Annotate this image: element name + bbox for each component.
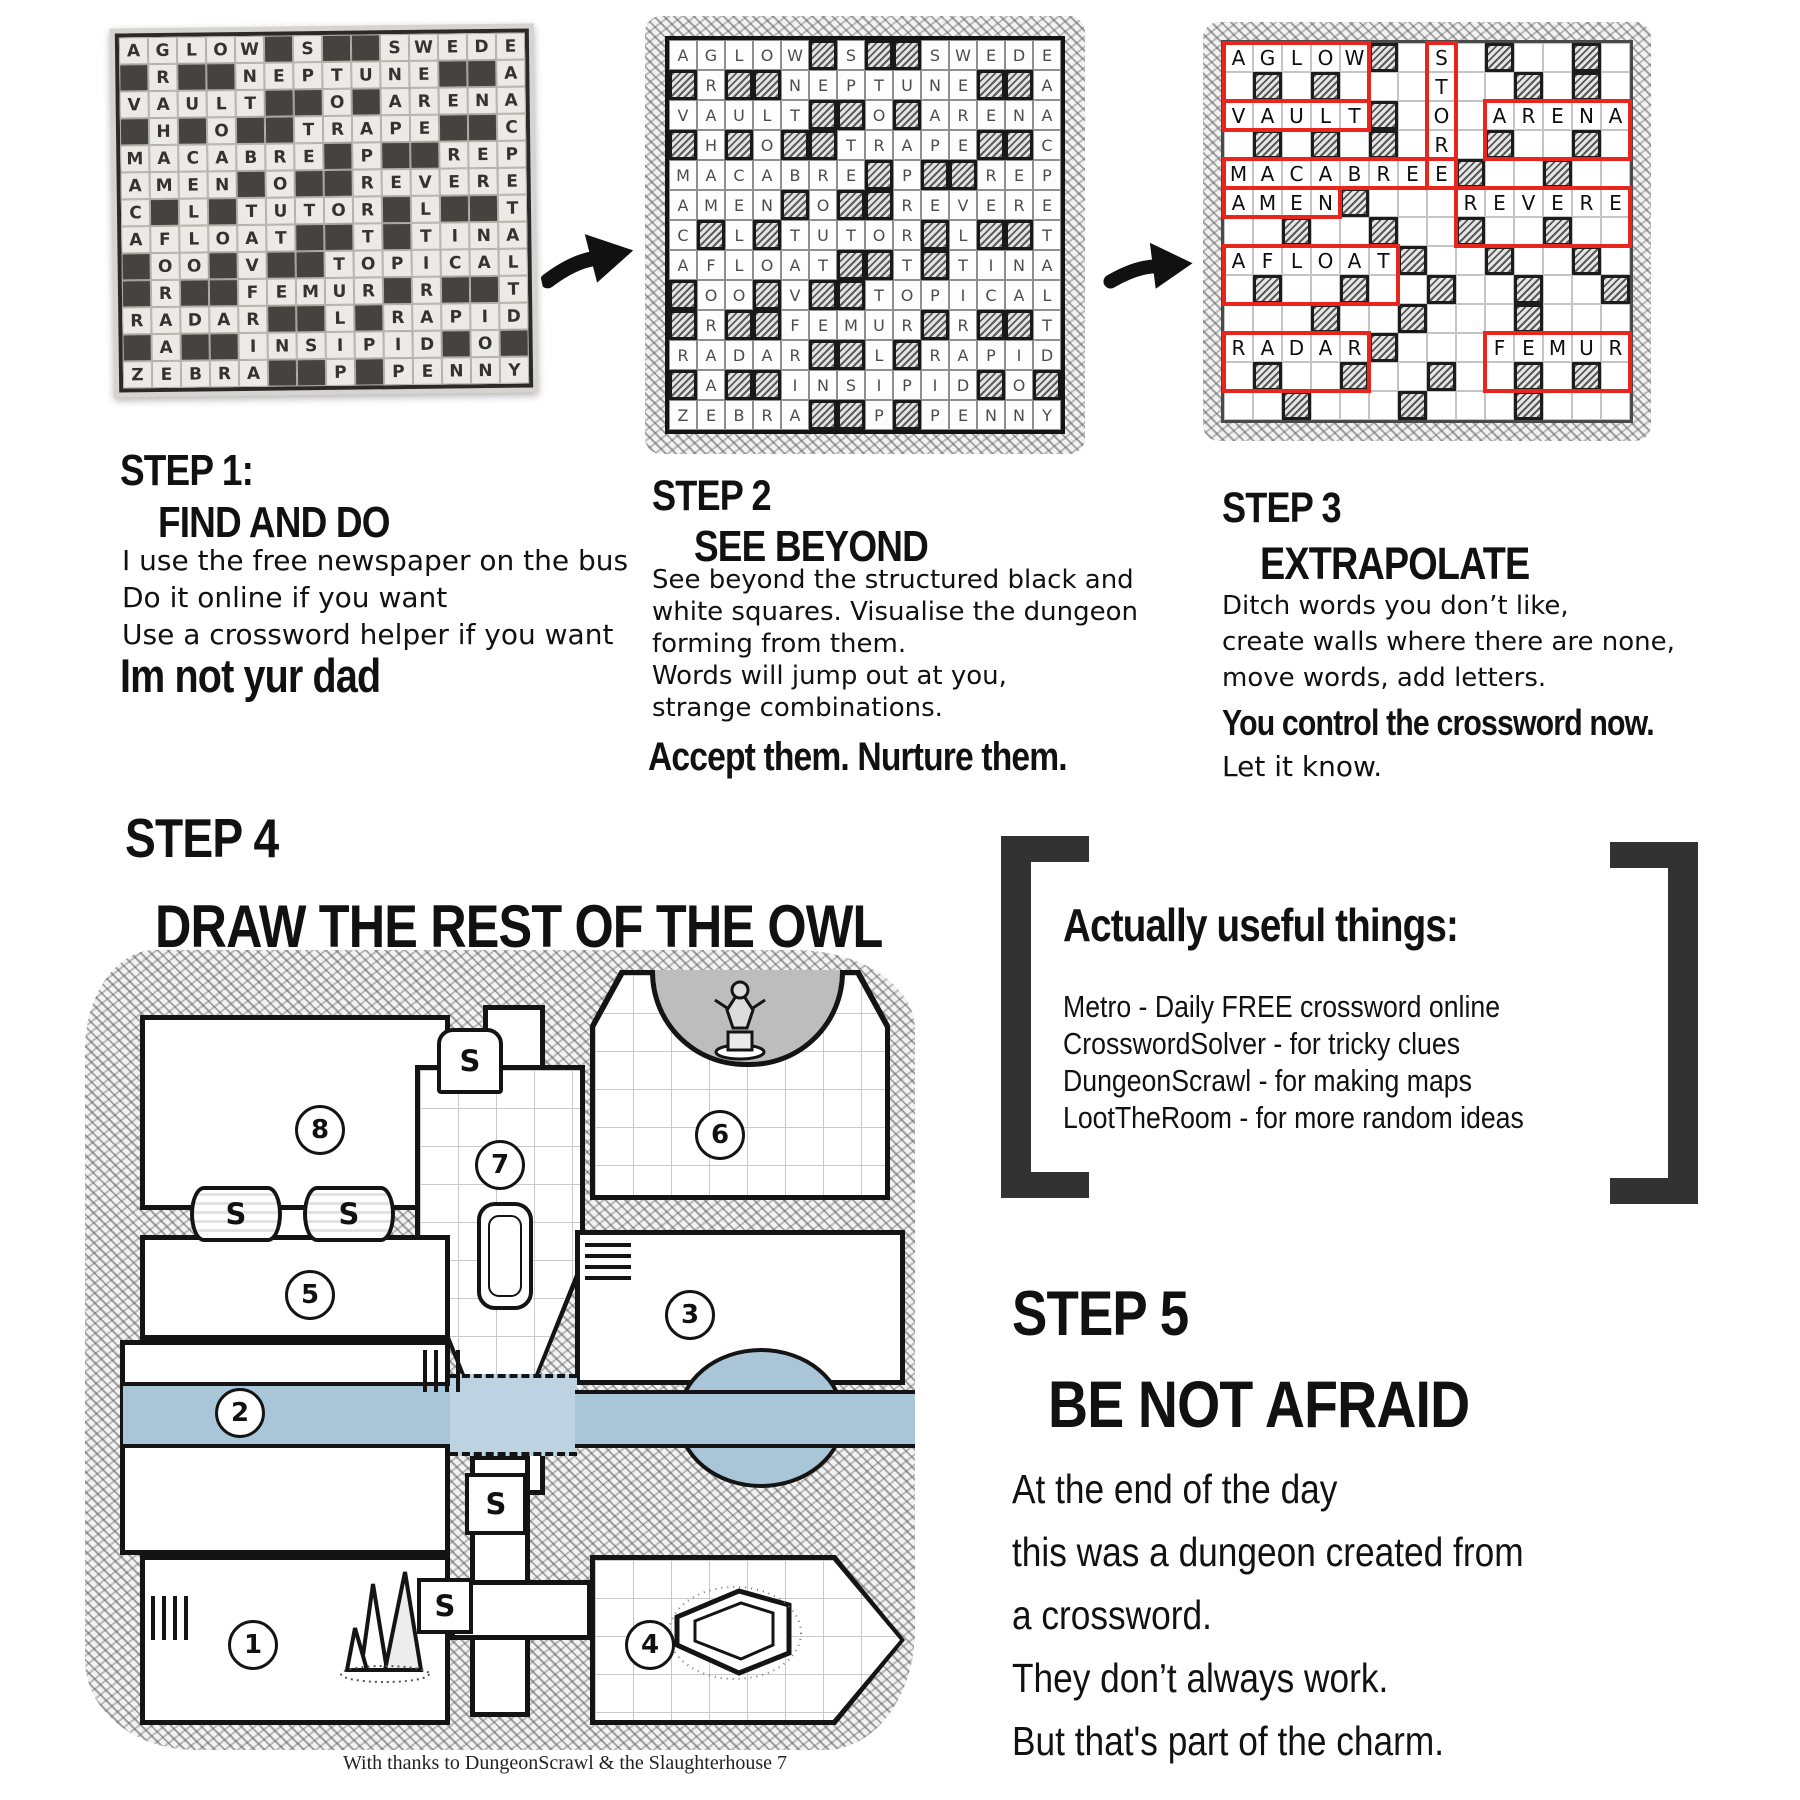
crossword-black-cell: [1005, 130, 1033, 160]
crossword-cell: [1456, 72, 1485, 101]
crossword-cell: P: [977, 340, 1005, 370]
crossword-cell: R: [865, 130, 893, 160]
crossword-cell: S: [296, 332, 325, 359]
crossword-black-cell: [1369, 101, 1398, 130]
crossword-cell: A: [239, 360, 268, 387]
crossword-cell: [1311, 275, 1340, 304]
crossword-cell: S: [837, 370, 865, 400]
crossword-cell: [1572, 159, 1601, 188]
crossword-cell: D: [467, 33, 496, 60]
statue-icon-holder: [697, 976, 783, 1066]
crossword-cell: A: [1340, 246, 1369, 275]
crossword-cell: [1456, 333, 1485, 362]
crossword-cell: [1282, 130, 1311, 159]
crossword-cell: Y: [1033, 400, 1061, 430]
crossword-black-cell: [441, 330, 470, 357]
crossword-black-cell: [1572, 72, 1601, 101]
crossword-black-cell: [753, 280, 781, 310]
crossword-cell: I: [440, 222, 469, 249]
crossword-cell: [1369, 304, 1398, 333]
crossword-cell: E: [267, 278, 296, 305]
crossword-cell: [1369, 275, 1398, 304]
crossword-black-cell: [1033, 370, 1061, 400]
crossword-cell: B: [181, 360, 210, 387]
crossword-black-cell: [1485, 130, 1514, 159]
crossword-cell: [1282, 72, 1311, 101]
step5-body-line: this was a dungeon created from: [1012, 1521, 1524, 1584]
crossword-cell: A: [697, 340, 725, 370]
crossword-grid-step1: AGLOWSSWEDERNEPTUNEAVAULTOARENAHOTRAPECM…: [115, 28, 533, 392]
crossword-cell: O: [1005, 370, 1033, 400]
crossword-cell: [1543, 304, 1572, 333]
crossword-black-cell: [977, 220, 1005, 250]
crossword-black-cell: [150, 199, 179, 226]
crossword-cell: G: [1253, 43, 1282, 72]
crossword-cell: P: [1033, 160, 1061, 190]
crossword-cell: T: [809, 250, 837, 280]
crossword-cell: A: [669, 190, 697, 220]
crossword-black-cell: [1311, 130, 1340, 159]
crossword-cell: E: [1601, 188, 1630, 217]
crossword-black-cell: [921, 220, 949, 250]
crossword-black-cell: [1543, 217, 1572, 246]
step3-body-line: create walls where there are none,: [1222, 624, 1675, 660]
crossword-cell: N: [442, 357, 471, 384]
crossword-cell: [1282, 275, 1311, 304]
crossword-sketch-panel: AGLOWSSWEDERNEPTUNEAVAULTOARENAHOTRAPECM…: [645, 16, 1085, 454]
crossword-cell: E: [264, 62, 293, 89]
crossword-cell: E: [1005, 160, 1033, 190]
river-east: [575, 1390, 915, 1448]
crossword-cell: O: [206, 36, 235, 63]
crossword-black-cell: [440, 195, 469, 222]
crossword-cell: A: [1033, 250, 1061, 280]
step1-title: STEP 1:: [120, 446, 253, 496]
step3-body-line: move words, add letters.: [1222, 660, 1675, 696]
crossword-black-cell: [1514, 362, 1543, 391]
crossword-black-cell: [1369, 43, 1398, 72]
crossword-black-cell: [1514, 304, 1543, 333]
crossword-cell: I: [921, 370, 949, 400]
crossword-cell: W: [781, 40, 809, 70]
crossword-black-cell: [1340, 275, 1369, 304]
crossword-cell: A: [1311, 159, 1340, 188]
crossword-cell: D: [1282, 333, 1311, 362]
crossword-cell: E: [1485, 188, 1514, 217]
crossword-cell: [1427, 391, 1456, 420]
crossword-black-cell: [669, 370, 697, 400]
stairs-icon: [585, 1243, 631, 1283]
crossword-cell: N: [1005, 250, 1033, 280]
crossword-cell: E: [439, 168, 468, 195]
crossword-black-cell: [921, 310, 949, 340]
crossword-black-cell: [206, 63, 235, 90]
crossword-cell: T: [865, 70, 893, 100]
crossword-cell: O: [893, 280, 921, 310]
crossword-cell: W: [235, 36, 264, 63]
step2-body-line: white squares. Visualise the dungeon: [652, 596, 1138, 628]
crossword-black-cell: [323, 143, 352, 170]
crossword-black-cell: [1005, 310, 1033, 340]
crossword-cell: O: [753, 130, 781, 160]
crossword-cell: L: [411, 196, 440, 223]
crossword-cell: A: [209, 306, 238, 333]
crossword-cell: E: [438, 33, 467, 60]
crossword-cell: B: [781, 160, 809, 190]
crossword-cell: E: [1033, 190, 1061, 220]
crossword-cell: A: [781, 400, 809, 430]
crossword-cell: I: [977, 250, 1005, 280]
crossword-cell: N: [1005, 100, 1033, 130]
crossword-cell: R: [468, 168, 497, 195]
crossword-cell: R: [781, 340, 809, 370]
crossword-cell: C: [725, 160, 753, 190]
crossword-black-cell: [295, 224, 324, 251]
crossword-black-cell: [119, 64, 148, 91]
crossword-black-cell: [977, 70, 1005, 100]
crossword-cell: O: [180, 252, 209, 279]
crossword-cell: R: [1427, 130, 1456, 159]
crossword-cell: A: [921, 100, 949, 130]
crossword-grid-step2: AGLOWSSWEDERNEPTUNEAVAULTOARENAHOTRAPECM…: [665, 36, 1065, 434]
crossword-cell: [1572, 304, 1601, 333]
crossword-cell: A: [207, 144, 236, 171]
crossword-cell: [1514, 130, 1543, 159]
crossword-cell: G: [697, 40, 725, 70]
step3-body-line: Ditch words you don’t like,: [1222, 588, 1675, 624]
crossword-cell: [1398, 130, 1427, 159]
crossword-cell: P: [865, 400, 893, 430]
crossword-black-cell: [753, 220, 781, 250]
crossword-cell: E: [496, 33, 525, 60]
crossword-cell: R: [753, 400, 781, 430]
crossword-cell: [1601, 72, 1630, 101]
crossword-cell: [1572, 275, 1601, 304]
crossword-cell: L: [1311, 101, 1340, 130]
crossword-cell: [1514, 246, 1543, 275]
crossword-black-cell: [977, 130, 1005, 160]
crossword-cell: P: [893, 160, 921, 190]
crossword-cell: [1224, 391, 1253, 420]
crossword-cell: A: [412, 304, 441, 331]
step2-body-line: Words will jump out at you,: [652, 660, 1138, 692]
crossword-cell: [1253, 304, 1282, 333]
crossword-cell: [1543, 72, 1572, 101]
crossword-black-cell: [865, 190, 893, 220]
crossword-cell: I: [411, 250, 440, 277]
crossword-cell: [1485, 362, 1514, 391]
crossword-cell: Z: [669, 400, 697, 430]
room-8: [140, 1015, 450, 1210]
crossword-cell: O: [865, 100, 893, 130]
crossword-black-cell: [1572, 246, 1601, 275]
crossword-black-cell: [1485, 43, 1514, 72]
crossword-cell: [1601, 246, 1630, 275]
crossword-black-cell: [753, 70, 781, 100]
crossword-black-cell: [837, 400, 865, 430]
crossword-cell: A: [669, 40, 697, 70]
crossword-cell: U: [1572, 333, 1601, 362]
crossword-cell: M: [837, 310, 865, 340]
crossword-cell: P: [893, 370, 921, 400]
crossword-cell: L: [725, 250, 753, 280]
crossword-cell: H: [697, 130, 725, 160]
crossword-cell: [1398, 362, 1427, 391]
crossword-cell: L: [179, 225, 208, 252]
crossword-cell: A: [121, 226, 150, 253]
crossword-cell: N: [471, 357, 500, 384]
crossword-cell: U: [809, 220, 837, 250]
crossword-cell: A: [151, 334, 180, 361]
crossword-cell: P: [497, 141, 526, 168]
crossword-black-cell: [294, 89, 323, 116]
step1-subtitle: FIND AND DO: [158, 498, 390, 548]
crossword-cell: L: [725, 40, 753, 70]
crossword-black-cell: [949, 160, 977, 190]
crossword-black-cell: [120, 118, 149, 145]
crossword-cell: T: [1427, 72, 1456, 101]
crossword-cell: [1340, 72, 1369, 101]
crossword-cell: C: [977, 280, 1005, 310]
crossword-cell: [1398, 188, 1427, 217]
dungeon-map: 86753214SSSSS: [85, 950, 915, 1750]
crossword-cell: O: [151, 253, 180, 280]
crossword-cell: R: [977, 160, 1005, 190]
crossword-cell: A: [497, 87, 526, 114]
crossword-cell: O: [1311, 246, 1340, 275]
crossword-cell: T: [1033, 220, 1061, 250]
crossword-cell: [1485, 159, 1514, 188]
crossword-cell: L: [179, 198, 208, 225]
crossword-cell: E: [809, 70, 837, 100]
crossword-cell: M: [150, 172, 179, 199]
secret-door-marker: S: [303, 1186, 395, 1242]
crossword-cell: A: [121, 172, 150, 199]
crossword-cell: A: [1485, 101, 1514, 130]
crossword-cell: N: [1311, 188, 1340, 217]
crossword-black-cell: [439, 114, 468, 141]
crossword-cell: N: [468, 87, 497, 114]
crossword-black-cell: [410, 142, 439, 169]
crossword-black-cell: [1514, 391, 1543, 420]
step5-body-line: They don’t always work.: [1012, 1647, 1524, 1710]
crossword-cell: T: [865, 280, 893, 310]
crossword-cell: T: [1340, 101, 1369, 130]
crossword-cell: F: [1485, 333, 1514, 362]
crossword-cell: P: [921, 130, 949, 160]
crossword-cell: N: [781, 70, 809, 100]
crossword-cell: A: [1033, 70, 1061, 100]
crossword-cell: R: [809, 160, 837, 190]
crossword-cell: T: [781, 220, 809, 250]
crossword-cell: [1485, 72, 1514, 101]
crossword-cell: R: [354, 277, 383, 304]
crossword-cell: [1369, 72, 1398, 101]
crossword-cell: I: [470, 303, 499, 330]
crossword-cell: U: [865, 310, 893, 340]
step5-body-line: At the end of the day: [1012, 1458, 1524, 1521]
crossword-cell: N: [809, 370, 837, 400]
crossword-black-cell: [809, 130, 837, 160]
crossword-cell: U: [178, 90, 207, 117]
crossword-black-cell: [296, 305, 325, 332]
crossword-cell: A: [1253, 101, 1282, 130]
crossword-black-cell: [865, 250, 893, 280]
crossword-cell: N: [380, 61, 409, 88]
crossword-black-cell: [1311, 304, 1340, 333]
crossword-cell: D: [180, 306, 209, 333]
step1-body: I use the free newspaper on the bus Do i…: [122, 542, 628, 653]
room-number-2: 2: [215, 1388, 265, 1438]
crossword-cell: U: [266, 197, 295, 224]
crossword-cell: A: [753, 340, 781, 370]
crossword-cell: A: [381, 88, 410, 115]
crossword-black-cell: [1398, 304, 1427, 333]
crossword-cell: F: [150, 226, 179, 253]
crossword-cell: U: [893, 70, 921, 100]
crossword-cell: E: [179, 171, 208, 198]
crossword-black-cell: [355, 358, 384, 385]
crossword-cell: V: [410, 169, 439, 196]
crossword-cell: F: [238, 279, 267, 306]
crossword-cell: L: [1282, 246, 1311, 275]
crossword-cell: M: [1543, 333, 1572, 362]
crossword-cell: T: [1369, 246, 1398, 275]
crossword-cell: S: [380, 34, 409, 61]
crossword-cell: [1601, 391, 1630, 420]
crossword-cell: A: [352, 115, 381, 142]
crossword-cell: D: [499, 303, 528, 330]
step2-body-line: strange combinations.: [652, 692, 1138, 724]
crossword-cell: A: [781, 250, 809, 280]
crossword-cell: T: [236, 90, 265, 117]
crossword-cell: N: [235, 63, 264, 90]
crossword-cell: V: [949, 190, 977, 220]
crossword-cell: R: [1514, 101, 1543, 130]
step1-emphasis: Im not yur dad: [120, 648, 380, 703]
crossword-cell: A: [149, 91, 178, 118]
crossword-black-cell: [470, 276, 499, 303]
crossword-cell: [1224, 72, 1253, 101]
crossword-cell: I: [238, 333, 267, 360]
crossword-black-cell: [669, 310, 697, 340]
crossword-cell: C: [497, 114, 526, 141]
crossword-cell: [1224, 130, 1253, 159]
useful-things-list: Metro - Daily FREE crossword online Cros…: [1063, 988, 1524, 1136]
crossword-black-cell: [1253, 130, 1282, 159]
crossword-cell: [1398, 333, 1427, 362]
crossword-cell: L: [177, 36, 206, 63]
crossword-cell: R: [949, 100, 977, 130]
crossword-cell: M: [1253, 188, 1282, 217]
crossword-black-cell: [267, 305, 296, 332]
crossword-black-cell: [180, 333, 209, 360]
crossword-cell: L: [1282, 43, 1311, 72]
crossword-cell: N: [977, 400, 1005, 430]
step2-body-line: See beyond the structured black and: [652, 564, 1138, 596]
crossword-cell: [1311, 217, 1340, 246]
step1-body-line: I use the free newspaper on the bus: [122, 542, 628, 579]
room-number-7: 7: [475, 1140, 525, 1190]
crossword-cell: L: [865, 340, 893, 370]
crossword-cell: A: [1033, 100, 1061, 130]
crossword-cell: E: [837, 160, 865, 190]
crossword-black-cell: [669, 280, 697, 310]
crossword-cell: [1253, 391, 1282, 420]
crossword-cell: U: [1282, 101, 1311, 130]
crossword-black-cell: [265, 116, 294, 143]
crossword-cell: [1543, 362, 1572, 391]
crossword-cell: T: [411, 223, 440, 250]
crossword-black-cell: [209, 333, 238, 360]
crossword-black-cell: [297, 359, 326, 386]
crossword-cell: A: [697, 100, 725, 130]
crossword-cell: [1543, 275, 1572, 304]
crossword-cell: [1456, 275, 1485, 304]
crossword-black-cell: [382, 223, 411, 250]
crossword-black-cell: [1282, 217, 1311, 246]
crossword-black-cell: [725, 370, 753, 400]
crossword-cell: O: [865, 220, 893, 250]
crossword-cell: G: [148, 37, 177, 64]
crossword-black-cell: [178, 117, 207, 144]
crossword-cell: R: [238, 306, 267, 333]
crossword-cell: [1456, 43, 1485, 72]
crossword-cell: E: [1033, 40, 1061, 70]
crossword-cell: P: [381, 115, 410, 142]
crossword-cell: T: [781, 100, 809, 130]
crossword-cell: [1369, 362, 1398, 391]
coffin-icon: [667, 1583, 805, 1683]
crossword-cell: E: [439, 87, 468, 114]
step2-title: STEP 2: [652, 472, 771, 521]
crossword-black-cell: [977, 310, 1005, 340]
crossword-cell: [1485, 304, 1514, 333]
crossword-cell: E: [1427, 159, 1456, 188]
crossword-cell: N: [1572, 101, 1601, 130]
crossword-cell: B: [725, 400, 753, 430]
useful-things-item: Metro - Daily FREE crossword online: [1063, 988, 1524, 1025]
step2-body-line: forming from them.: [652, 628, 1138, 660]
arrow-right-icon: [1099, 224, 1201, 308]
crossword-cell: P: [382, 250, 411, 277]
crossword-cell: R: [1601, 333, 1630, 362]
crossword-cell: Z: [123, 361, 152, 388]
crossword-black-cell: [382, 196, 411, 223]
crossword-black-cell: [809, 40, 837, 70]
secret-door-marker: S: [190, 1186, 282, 1242]
crossword-cell: D: [1033, 340, 1061, 370]
crossword-cell: I: [865, 370, 893, 400]
crossword-cell: E: [1514, 333, 1543, 362]
crossword-black-cell: [1427, 362, 1456, 391]
crossword-cell: T: [324, 251, 353, 278]
crossword-cell: V: [1514, 188, 1543, 217]
crossword-cell: [1398, 217, 1427, 246]
crossword-cell: R: [1456, 188, 1485, 217]
crossword-cell: [1456, 362, 1485, 391]
crossword-cell: [1398, 275, 1427, 304]
crossword-grid-step3: AGLOWSTVAULTOARENARMACABREEAMENREVEREAFL…: [1221, 40, 1633, 423]
step2-body: See beyond the structured black and whit…: [652, 564, 1138, 724]
crossword-black-cell: [977, 370, 1005, 400]
crossword-cell: P: [384, 358, 413, 385]
crossword-cell: I: [325, 332, 354, 359]
crossword-black-cell: [1572, 43, 1601, 72]
right-bracket-decoration: [1610, 842, 1698, 1204]
crossword-black-cell: [1427, 275, 1456, 304]
crossword-cell: R: [412, 277, 441, 304]
